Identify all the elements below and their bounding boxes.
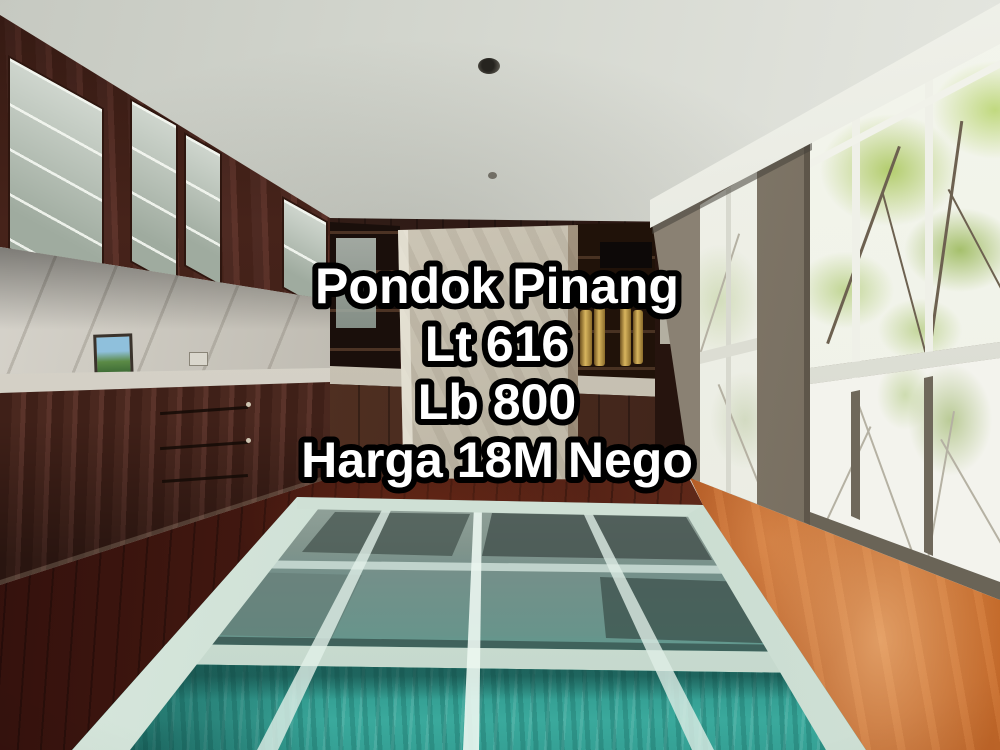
- vignette: [0, 0, 1000, 750]
- listing-photo: Pondok Pinang Lt 616 Lb 800 Harga 18M Ne…: [0, 0, 1000, 750]
